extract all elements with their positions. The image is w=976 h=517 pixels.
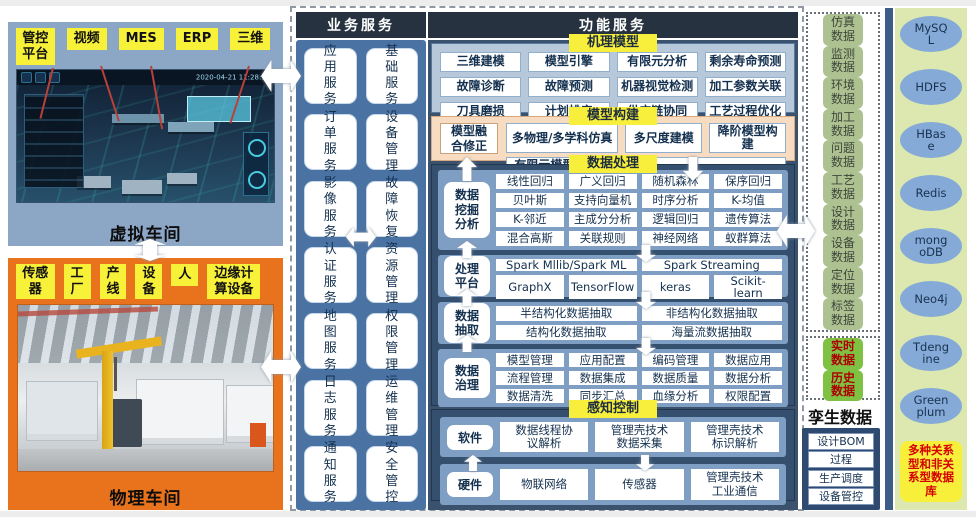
perception-item: 物联网络 bbox=[500, 469, 588, 499]
item-row: 故障诊断故障预测机器视觉检测加工参数关联 bbox=[440, 77, 786, 97]
business-service-item: 权限管理 bbox=[366, 313, 419, 369]
database-note: 多种关系型和非关系型数据库 bbox=[900, 441, 962, 502]
panel-grid: 半结构化数据抽取非结构化数据抽取结构化数据抽取海量流数据抽取 bbox=[496, 306, 782, 340]
algorithm-item: Scikit-learn bbox=[714, 275, 782, 299]
flow-down-arrow bbox=[683, 157, 703, 181]
data-processing-panel: 数据挖掘分析线性回归广义回归随机森林保序回归贝叶斯支持向量机时序分析K-均值K-… bbox=[438, 170, 788, 250]
algorithm-item: 半结构化数据抽取 bbox=[496, 306, 637, 321]
label-chip: ERP bbox=[176, 28, 218, 50]
database-ellipse: Neo4j bbox=[900, 281, 962, 317]
screen-icon bbox=[21, 72, 32, 83]
data-category-item: 定位数据 bbox=[823, 267, 863, 299]
factory-floor bbox=[18, 449, 273, 471]
algorithm-item: TensorFlow bbox=[569, 275, 637, 299]
label-chip: MES bbox=[119, 28, 164, 50]
business-service-item: 地图服务 bbox=[304, 313, 357, 369]
algorithm-item: Spark Mllib/Spark ML bbox=[496, 259, 637, 271]
data-category-item: 设计数据 bbox=[823, 204, 863, 236]
algorithm-item: 数据集成 bbox=[569, 371, 637, 385]
database-ellipse: HBase bbox=[900, 122, 962, 158]
data-category-item: 问题数据 bbox=[823, 140, 863, 172]
data-category-item: 标签数据 bbox=[823, 298, 863, 330]
panel-label: 数据治理 bbox=[444, 358, 490, 399]
virtual-info-panel bbox=[24, 94, 84, 188]
flow-down-arrow bbox=[636, 292, 656, 309]
function-item: 模型引擎 bbox=[528, 52, 609, 72]
algorithm-item: 广义回归 bbox=[569, 174, 637, 189]
algorithm-item: 关联规则 bbox=[569, 231, 637, 246]
virtual-machine bbox=[167, 173, 197, 184]
virtual-machine bbox=[112, 114, 164, 123]
flow-up-arrow bbox=[457, 241, 477, 258]
perception-item: 管理壳技术标识解析 bbox=[691, 422, 779, 452]
database-ellipse: Redis bbox=[900, 175, 962, 211]
flow-up-arrow bbox=[457, 289, 477, 306]
database-ellipse: mongoDB bbox=[900, 228, 962, 264]
algorithm-item: GraphX bbox=[496, 275, 564, 299]
algorithm-item: 数据分析 bbox=[714, 371, 782, 385]
orange-cart bbox=[250, 423, 266, 447]
virtual-machine bbox=[168, 122, 214, 132]
item-row: 线性回归广义回归随机森林保序回归 bbox=[496, 174, 782, 189]
database-ellipse: Tdengine bbox=[900, 335, 962, 371]
data-category-item: 加工数据 bbox=[823, 109, 863, 141]
algorithm-item: K-均值 bbox=[714, 193, 782, 208]
algorithm-item: 数据应用 bbox=[714, 353, 782, 367]
virtual-screen-topbar: 2020-04-21 11:28:14 bbox=[17, 70, 274, 85]
perception-label: 软件 bbox=[447, 425, 493, 450]
data-processing-panels: 数据挖掘分析线性回归广义回归随机森林保序回归贝叶斯支持向量机时序分析K-均值K-… bbox=[438, 170, 788, 407]
panel-grid: Spark Mllib/Spark MLSpark StreamingGraph… bbox=[496, 259, 782, 293]
item-row: 多物理/多学科仿真多尺度建模降阶模型构建 bbox=[506, 123, 786, 153]
algorithm-item: 数据质量 bbox=[642, 371, 710, 385]
flow-up-arrow bbox=[464, 455, 482, 471]
perception-item: 管理壳技术工业通信 bbox=[691, 469, 779, 499]
algorithm-item: 流程管理 bbox=[496, 371, 564, 385]
model-building-item: 多尺度建模 bbox=[625, 123, 702, 153]
label-chip: 三维 bbox=[230, 28, 270, 50]
realtime-data-item: 历史数据 bbox=[823, 370, 863, 402]
algorithm-item: Spark Streaming bbox=[642, 259, 783, 271]
process-item: 过程 bbox=[808, 451, 874, 468]
algorithm-item: 贝叶斯 bbox=[496, 193, 564, 208]
business-service-item: 设备管理 bbox=[366, 114, 419, 170]
panel-grid: 线性回归广义回归随机森林保序回归贝叶斯支持向量机时序分析K-均值K-邻近主成分分… bbox=[496, 174, 782, 246]
algorithm-item: 时序分析 bbox=[642, 193, 710, 208]
function-item: 剩余寿命预测 bbox=[705, 52, 786, 72]
algorithm-item: 遗传算法 bbox=[714, 212, 782, 227]
twin-realtime-history-box: 实时数据历史数据 bbox=[806, 336, 880, 400]
mechanism-model-section: 机理模型 三维建模模型引擎有限元分析剩余寿命预测故障诊断故障预测机器视觉检测加工… bbox=[431, 43, 795, 113]
mechanism-model-grid: 三维建模模型引擎有限元分析剩余寿命预测故障诊断故障预测机器视觉检测加工参数关联刀… bbox=[440, 52, 786, 108]
label-chip: 人 bbox=[171, 264, 198, 286]
flow-down-arrow bbox=[636, 245, 656, 262]
algorithm-item: 支持向量机 bbox=[569, 193, 637, 208]
function-item: 三维建模 bbox=[440, 52, 521, 72]
virtual-to-services-arrow bbox=[261, 60, 301, 92]
item-row: 流程管理数据集成数据质量数据分析 bbox=[496, 371, 782, 385]
realtime-data-item: 实时数据 bbox=[823, 338, 863, 370]
business-columns-arrow bbox=[346, 227, 376, 247]
data-processing-section: 数据处理 数据挖掘分析线性回归广义回归随机森林保序回归贝叶斯支持向量机时序分析K… bbox=[431, 164, 795, 406]
functional-services-panel: 机理模型 三维建模模型引擎有限元分析剩余寿命预测故障诊断故障预测机器视觉检测加工… bbox=[428, 40, 798, 510]
flow-up-arrow bbox=[457, 335, 477, 352]
digital-twin-architecture-diagram: 管控平台视频MESERP三维 2020-04-21 11:28:14 虚拟车间 bbox=[0, 0, 976, 517]
model-building-grid: 多物理/多学科仿真多尺度建模降阶模型构建有限元模型修正在线学习增量学习 bbox=[506, 123, 786, 154]
algorithm-item: 非结构化数据抽取 bbox=[642, 306, 783, 321]
algorithm-item: 海量流数据抽取 bbox=[642, 325, 783, 340]
perception-item: 数据线程协议解析 bbox=[500, 422, 588, 452]
label-chip: 边缘计算设备 bbox=[207, 264, 260, 299]
services-to-twin-data-arrow bbox=[777, 215, 815, 247]
virtual-workshop-image: 2020-04-21 11:28:14 bbox=[16, 69, 275, 203]
function-item: 有限元分析 bbox=[617, 52, 698, 72]
data-category-item: 仿真数据 bbox=[823, 14, 863, 46]
function-item: 故障预测 bbox=[528, 77, 609, 97]
panel-grid: 模型管理应用配置编码管理数据应用流程管理数据集成数据质量数据分析数据清洗同步汇总… bbox=[496, 353, 782, 403]
item-row: 贝叶斯支持向量机时序分析K-均值 bbox=[496, 193, 782, 208]
mechanism-model-tag: 机理模型 bbox=[569, 34, 657, 52]
algorithm-item: 权限配置 bbox=[714, 389, 782, 403]
process-item: 设备管控 bbox=[808, 488, 874, 505]
process-item: 生产调度 bbox=[808, 470, 874, 487]
label-chip: 视频 bbox=[67, 28, 107, 50]
algorithm-item: 混合高斯 bbox=[496, 231, 564, 246]
algorithm-item: 保序回归 bbox=[714, 174, 782, 189]
algorithm-item: K-邻近 bbox=[496, 212, 564, 227]
business-service-item: 应用服务 bbox=[304, 48, 357, 104]
algorithm-item: 蚁群算法 bbox=[714, 231, 782, 246]
function-item: 故障诊断 bbox=[440, 77, 521, 97]
algorithm-item: 应用配置 bbox=[569, 353, 637, 367]
data-processing-panel: 处理平台Spark Mllib/Spark MLSpark StreamingG… bbox=[438, 255, 788, 297]
data-processing-tag: 数据处理 bbox=[569, 155, 657, 173]
virtual-workshop-panel: 管控平台视频MESERP三维 2020-04-21 11:28:14 虚拟车间 bbox=[8, 22, 283, 246]
virtual-machine bbox=[122, 180, 162, 194]
data-processing-panel: 数据抽取半结构化数据抽取非结构化数据抽取结构化数据抽取海量流数据抽取 bbox=[438, 302, 788, 344]
virtual-physical-sync-arrow bbox=[134, 239, 166, 261]
perception-label: 硬件 bbox=[447, 472, 493, 497]
control-cabinet bbox=[110, 399, 142, 447]
virtual-gauge-widget bbox=[243, 132, 269, 196]
item-row: K-邻近主成分分析逻辑回归遗传算法 bbox=[496, 212, 782, 227]
algorithm-item: 结构化数据抽取 bbox=[496, 325, 637, 340]
physical-label-chips: 传感器工厂产线设备人边缘计算设备 bbox=[8, 258, 283, 299]
business-services-col2: 基础服务设备管理故障恢复资源管理权限管理运维管理安全管控 bbox=[366, 48, 419, 502]
business-services-panel: 应用服务订单服务影像服务认证服务地图服务日志服务通知服务 基础服务设备管理故障恢… bbox=[296, 40, 426, 510]
business-service-item: 通知服务 bbox=[304, 446, 357, 502]
twin-data-caption: 孪生数据 bbox=[796, 404, 884, 428]
algorithm-item: 线性回归 bbox=[496, 174, 564, 189]
database-panel: MySQLHDFSHBaseRedismongoDBNeo4jTdengineG… bbox=[895, 8, 967, 510]
twin-data-categories-box: 仿真数据监测数据环境数据加工数据问题数据工艺数据设计数据设备数据定位数据标签数据 bbox=[806, 12, 880, 332]
data-category-item: 设备数据 bbox=[823, 235, 863, 267]
database-ellipse: MySQL bbox=[900, 16, 962, 52]
screen-timestamp: 2020-04-21 11:28:14 bbox=[196, 74, 270, 82]
data-category-item: 监测数据 bbox=[823, 46, 863, 78]
physical-workshop-panel: 传感器工厂产线设备人边缘计算设备 物理车间 bbox=[8, 258, 283, 510]
process-data-box: 设计BOM过程生产调度设备管控 bbox=[802, 428, 880, 510]
data-category-item: 工艺数据 bbox=[823, 172, 863, 204]
perception-control-tag: 感知控制 bbox=[569, 400, 657, 418]
machine-block bbox=[136, 379, 224, 445]
virtual-big-screen bbox=[187, 96, 251, 122]
item-row: 混合高斯关联规则神经网络蚁群算法 bbox=[496, 231, 782, 246]
database-ellipse: Greenplum bbox=[900, 388, 962, 424]
perception-row: 硬件物联网络传感器管理壳技术工业通信 bbox=[440, 464, 786, 504]
database-divider-bar bbox=[885, 8, 893, 510]
item-row: 模型管理应用配置编码管理数据应用 bbox=[496, 353, 782, 367]
label-chip: 产线 bbox=[100, 264, 127, 299]
crane-hook bbox=[114, 357, 117, 391]
function-item: 机器视觉检测 bbox=[617, 77, 698, 97]
business-service-item: 日志服务 bbox=[304, 380, 357, 436]
crane-column bbox=[102, 351, 113, 457]
bottom-edge-band bbox=[0, 511, 976, 517]
label-chip: 传感器 bbox=[16, 264, 55, 299]
label-chip: 工厂 bbox=[64, 264, 91, 299]
algorithm-item: 主成分分析 bbox=[569, 212, 637, 227]
business-services-header: 业务服务 bbox=[296, 12, 426, 38]
physical-workshop-image bbox=[17, 304, 274, 472]
algorithm-item: 数据清洗 bbox=[496, 389, 564, 403]
virtual-label-chips: 管控平台视频MESERP三维 bbox=[8, 22, 283, 65]
physical-to-services-arrow bbox=[261, 351, 301, 383]
perception-row: 软件数据线程协议解析管理壳技术数据采集管理壳技术标识解析 bbox=[440, 417, 786, 457]
flow-down-arrow bbox=[636, 338, 656, 355]
item-row: 三维建模模型引擎有限元分析剩余寿命预测 bbox=[440, 52, 786, 72]
business-service-item: 基础服务 bbox=[366, 48, 419, 104]
model-building-item: 降阶模型构建 bbox=[709, 123, 786, 153]
model-building-item: 多物理/多学科仿真 bbox=[506, 123, 618, 153]
flow-down-arrow bbox=[636, 455, 654, 471]
label-chip: 管控平台 bbox=[16, 28, 55, 65]
business-service-item: 安全管控 bbox=[366, 446, 419, 502]
machine-block bbox=[26, 381, 98, 441]
algorithm-item: 神经网络 bbox=[642, 231, 710, 246]
perception-item: 传感器 bbox=[595, 469, 683, 499]
business-services-col1: 应用服务订单服务影像服务认证服务地图服务日志服务通知服务 bbox=[304, 48, 357, 502]
database-ellipse: HDFS bbox=[900, 69, 962, 105]
flow-up-arrow bbox=[457, 157, 477, 181]
business-service-item: 运维管理 bbox=[366, 380, 419, 436]
panel-label: 数据挖掘分析 bbox=[444, 182, 490, 237]
algorithm-item: 模型管理 bbox=[496, 353, 564, 367]
perception-control-rows: 软件数据线程协议解析管理壳技术数据采集管理壳技术标识解析硬件物联网络传感器管理壳… bbox=[440, 417, 786, 493]
model-building-side-item: 模型融合修正 bbox=[440, 123, 498, 154]
model-building-tag: 模型构建 bbox=[569, 107, 657, 125]
physical-workshop-caption: 物理车间 bbox=[8, 484, 283, 509]
algorithm-item: 逻辑回归 bbox=[642, 212, 710, 227]
label-chip: 设备 bbox=[135, 264, 162, 299]
data-processing-panel: 数据治理模型管理应用配置编码管理数据应用流程管理数据集成数据质量数据分析数据清洗… bbox=[438, 349, 788, 407]
screen-icon bbox=[35, 72, 46, 83]
algorithm-item: 编码管理 bbox=[642, 353, 710, 367]
business-service-item: 资源管理 bbox=[366, 247, 419, 303]
business-service-item: 订单服务 bbox=[304, 114, 357, 170]
data-category-item: 环境数据 bbox=[823, 77, 863, 109]
process-item: 设计BOM bbox=[808, 433, 874, 450]
business-service-item: 认证服务 bbox=[304, 247, 357, 303]
function-item: 加工参数关联 bbox=[705, 77, 786, 97]
perception-item: 管理壳技术数据采集 bbox=[595, 422, 683, 452]
perception-control-section: 感知控制 软件数据线程协议解析管理壳技术数据采集管理壳技术标识解析硬件物联网络传… bbox=[431, 409, 795, 501]
